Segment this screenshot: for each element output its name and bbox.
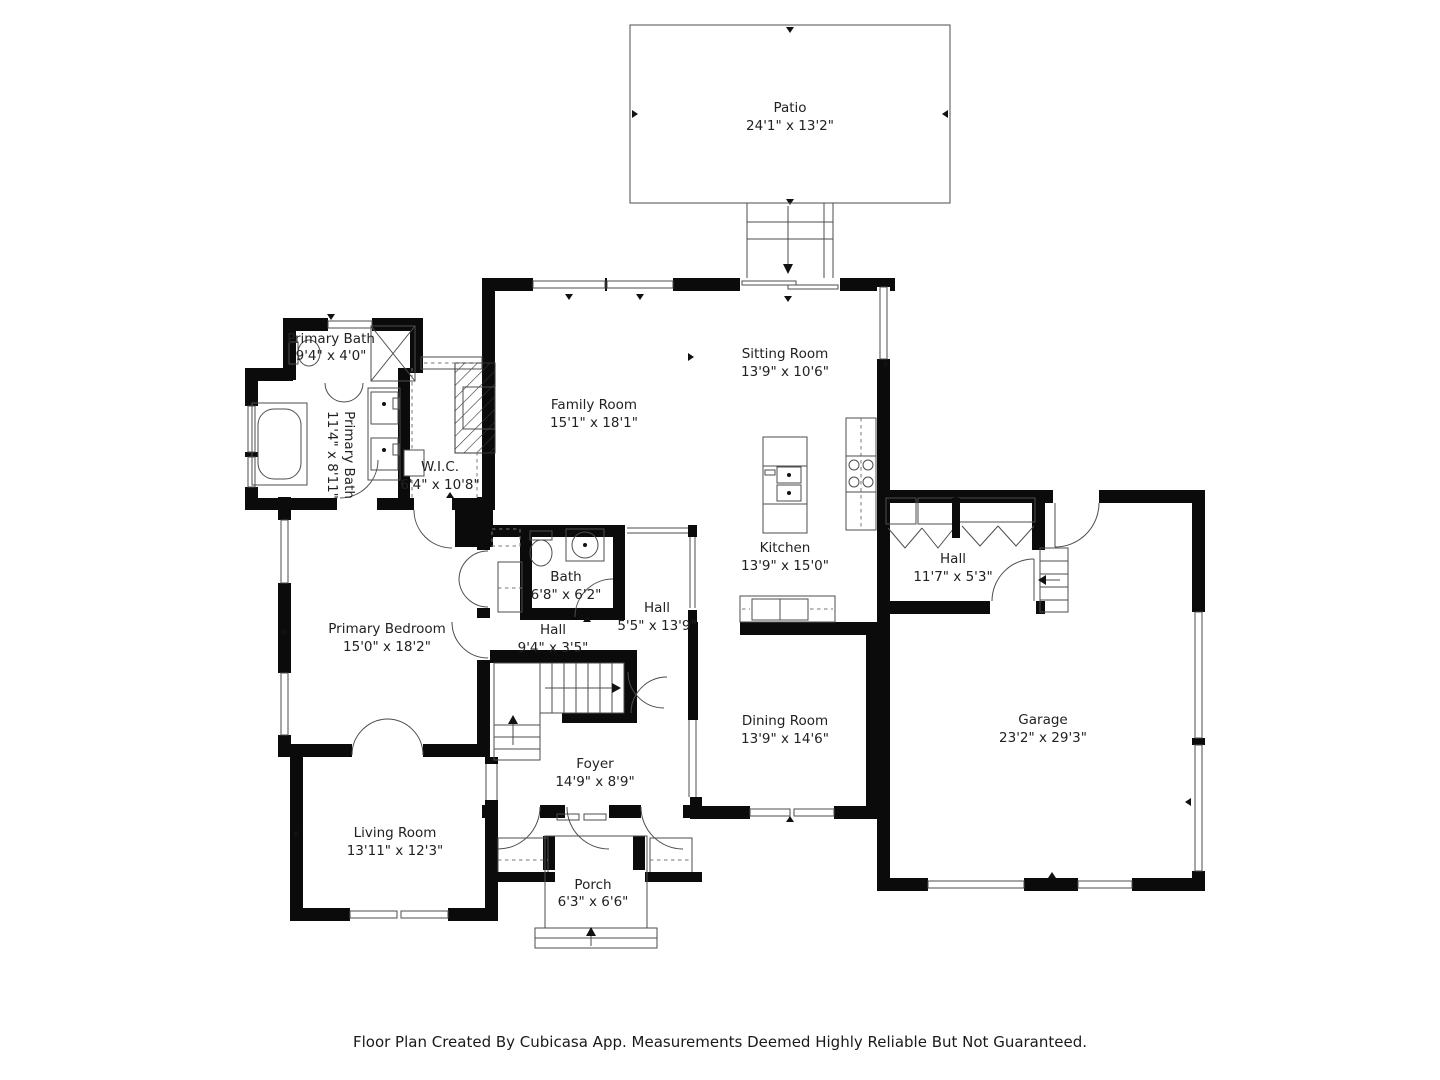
kitchen-counter (846, 418, 876, 530)
label-primary-bedroom: Primary Bedroom 15'0" x 18'2" (328, 621, 446, 655)
hall-closets (886, 498, 1035, 548)
bathtub (252, 403, 307, 485)
svg-text:Bath: Bath (550, 569, 581, 585)
label-foyer: Foyer 14'9" x 8'9" (555, 756, 634, 790)
svg-text:13'9" x 14'6": 13'9" x 14'6" (741, 731, 829, 747)
foyer-closet (489, 838, 702, 882)
svg-text:6'8" x 6'2": 6'8" x 6'2" (531, 587, 602, 603)
svg-text:Dining Room: Dining Room (742, 713, 828, 729)
svg-text:Primary Bedroom: Primary Bedroom (328, 621, 446, 637)
doors (325, 383, 1099, 849)
label-hall-right: Hall 11'7" x 5'3" (913, 551, 992, 585)
label-primary-bath-small: Primary Bath 9'4" x 4'0" (287, 331, 375, 364)
patio-area (630, 25, 950, 281)
svg-text:9'4" x 4'0": 9'4" x 4'0" (296, 348, 367, 364)
svg-text:Family Room: Family Room (551, 397, 637, 413)
svg-text:W.I.C.: W.I.C. (421, 459, 459, 475)
svg-text:14'9" x 8'9": 14'9" x 8'9" (555, 774, 634, 790)
svg-text:15'0" x 18'2": 15'0" x 18'2" (343, 639, 431, 655)
label-family-room: Family Room 15'1" x 18'1" (550, 397, 638, 431)
sliding-door (740, 278, 840, 302)
label-primary-bath: Primary Bath 11'4" x 8'11" (324, 411, 357, 499)
floor-plan-canvas: Patio 24'1" x 13'2" Primary Bath 9'4" x … (0, 0, 1440, 1080)
double-vanity (368, 388, 400, 480)
label-kitchen: Kitchen 13'9" x 15'0" (741, 540, 829, 574)
label-hall-center: Hall 5'5" x 13'9" (617, 600, 696, 634)
svg-text:6'3" x 6'6": 6'3" x 6'6" (558, 894, 629, 910)
svg-text:24'1" x 13'2": 24'1" x 13'2" (746, 118, 834, 134)
patio-steps (747, 203, 833, 281)
label-garage: Garage 23'2" x 29'3" (999, 712, 1087, 746)
footer-disclaimer: Floor Plan Created By Cubicasa App. Meas… (353, 1033, 1087, 1051)
floor-plan-page: Patio 24'1" x 13'2" Primary Bath 9'4" x … (0, 0, 1440, 1080)
svg-text:9'4" x 3'5": 9'4" x 3'5" (518, 640, 589, 656)
label-dining-room: Dining Room 13'9" x 14'6" (741, 713, 829, 747)
svg-text:Living Room: Living Room (354, 825, 437, 841)
label-hall-small: Hall 9'4" x 3'5" (518, 622, 589, 656)
svg-text:Patio: Patio (773, 100, 806, 116)
svg-text:11'4" x 8'11": 11'4" x 8'11" (324, 411, 340, 499)
svg-text:Hall: Hall (940, 551, 966, 567)
svg-text:13'11" x 12'3": 13'11" x 12'3" (347, 843, 444, 859)
svg-text:Primary Bath: Primary Bath (287, 331, 375, 347)
main-staircase (494, 663, 624, 760)
svg-text:Primary Bath: Primary Bath (341, 411, 357, 499)
svg-text:13'9" x 15'0": 13'9" x 15'0" (741, 558, 829, 574)
svg-text:Hall: Hall (644, 600, 670, 616)
svg-text:5'5" x 13'9": 5'5" x 13'9" (617, 618, 696, 634)
svg-text:Porch: Porch (574, 877, 611, 893)
svg-text:Hall: Hall (540, 622, 566, 638)
label-porch: Porch 6'3" x 6'6" (558, 877, 629, 910)
svg-text:23'2" x 29'3": 23'2" x 29'3" (999, 730, 1087, 746)
label-sitting-room: Sitting Room 13'9" x 10'6" (741, 346, 829, 380)
svg-text:6'4" x 10'8": 6'4" x 10'8" (400, 477, 479, 493)
svg-text:13'9" x 10'6": 13'9" x 10'6" (741, 364, 829, 380)
svg-text:11'7" x 5'3": 11'7" x 5'3" (913, 569, 992, 585)
basement-stair-hatch (421, 357, 495, 453)
svg-text:Sitting Room: Sitting Room (742, 346, 829, 362)
kitchen-island (763, 437, 807, 533)
svg-text:Garage: Garage (1018, 712, 1067, 728)
kitchen-cabinet-row (740, 596, 835, 622)
svg-text:Kitchen: Kitchen (760, 540, 811, 556)
svg-text:Foyer: Foyer (576, 756, 614, 772)
svg-text:15'1" x 18'1": 15'1" x 18'1" (550, 415, 638, 431)
kitchen-fixtures (740, 418, 876, 622)
shower (371, 326, 415, 381)
label-living-room: Living Room 13'11" x 12'3" (347, 825, 444, 859)
wall-markers (282, 294, 1191, 878)
